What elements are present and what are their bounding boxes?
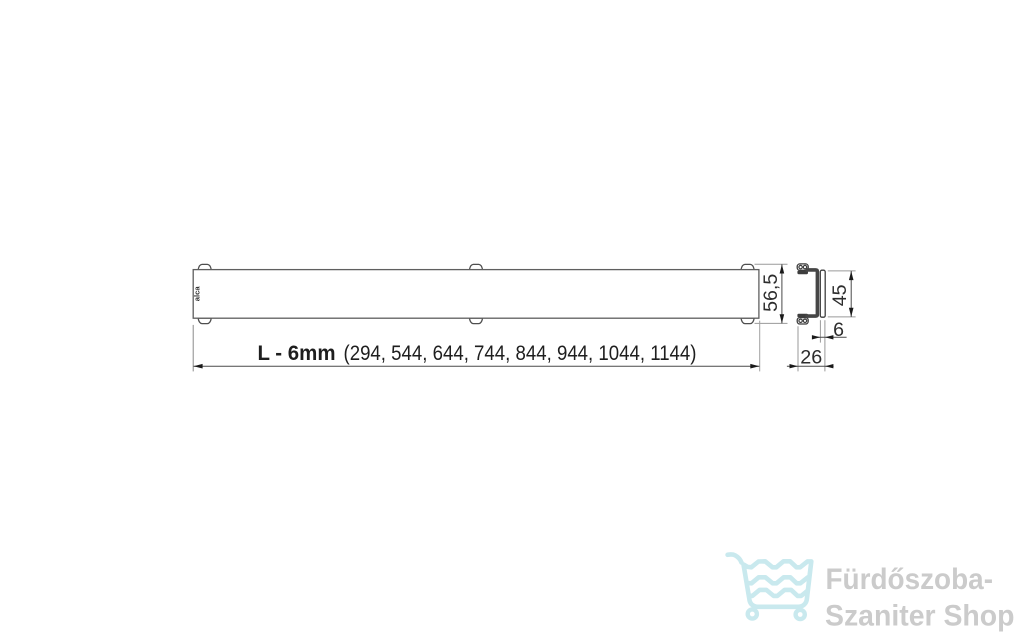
svg-text:45: 45 [829, 284, 851, 306]
svg-text:alca: alca [193, 286, 202, 302]
svg-text:L - 6mm: L - 6mm [258, 341, 336, 365]
svg-text:Szaniter Shop: Szaniter Shop [825, 600, 1015, 633]
svg-text:6: 6 [833, 319, 844, 341]
svg-text:(294, 544, 644, 744, 844, 944,: (294, 544, 644, 744, 844, 944, 1044, 114… [344, 341, 697, 365]
svg-text:Fürdőszoba-: Fürdőszoba- [826, 563, 994, 596]
svg-text:26: 26 [800, 347, 822, 369]
svg-text:56,5: 56,5 [760, 274, 782, 312]
